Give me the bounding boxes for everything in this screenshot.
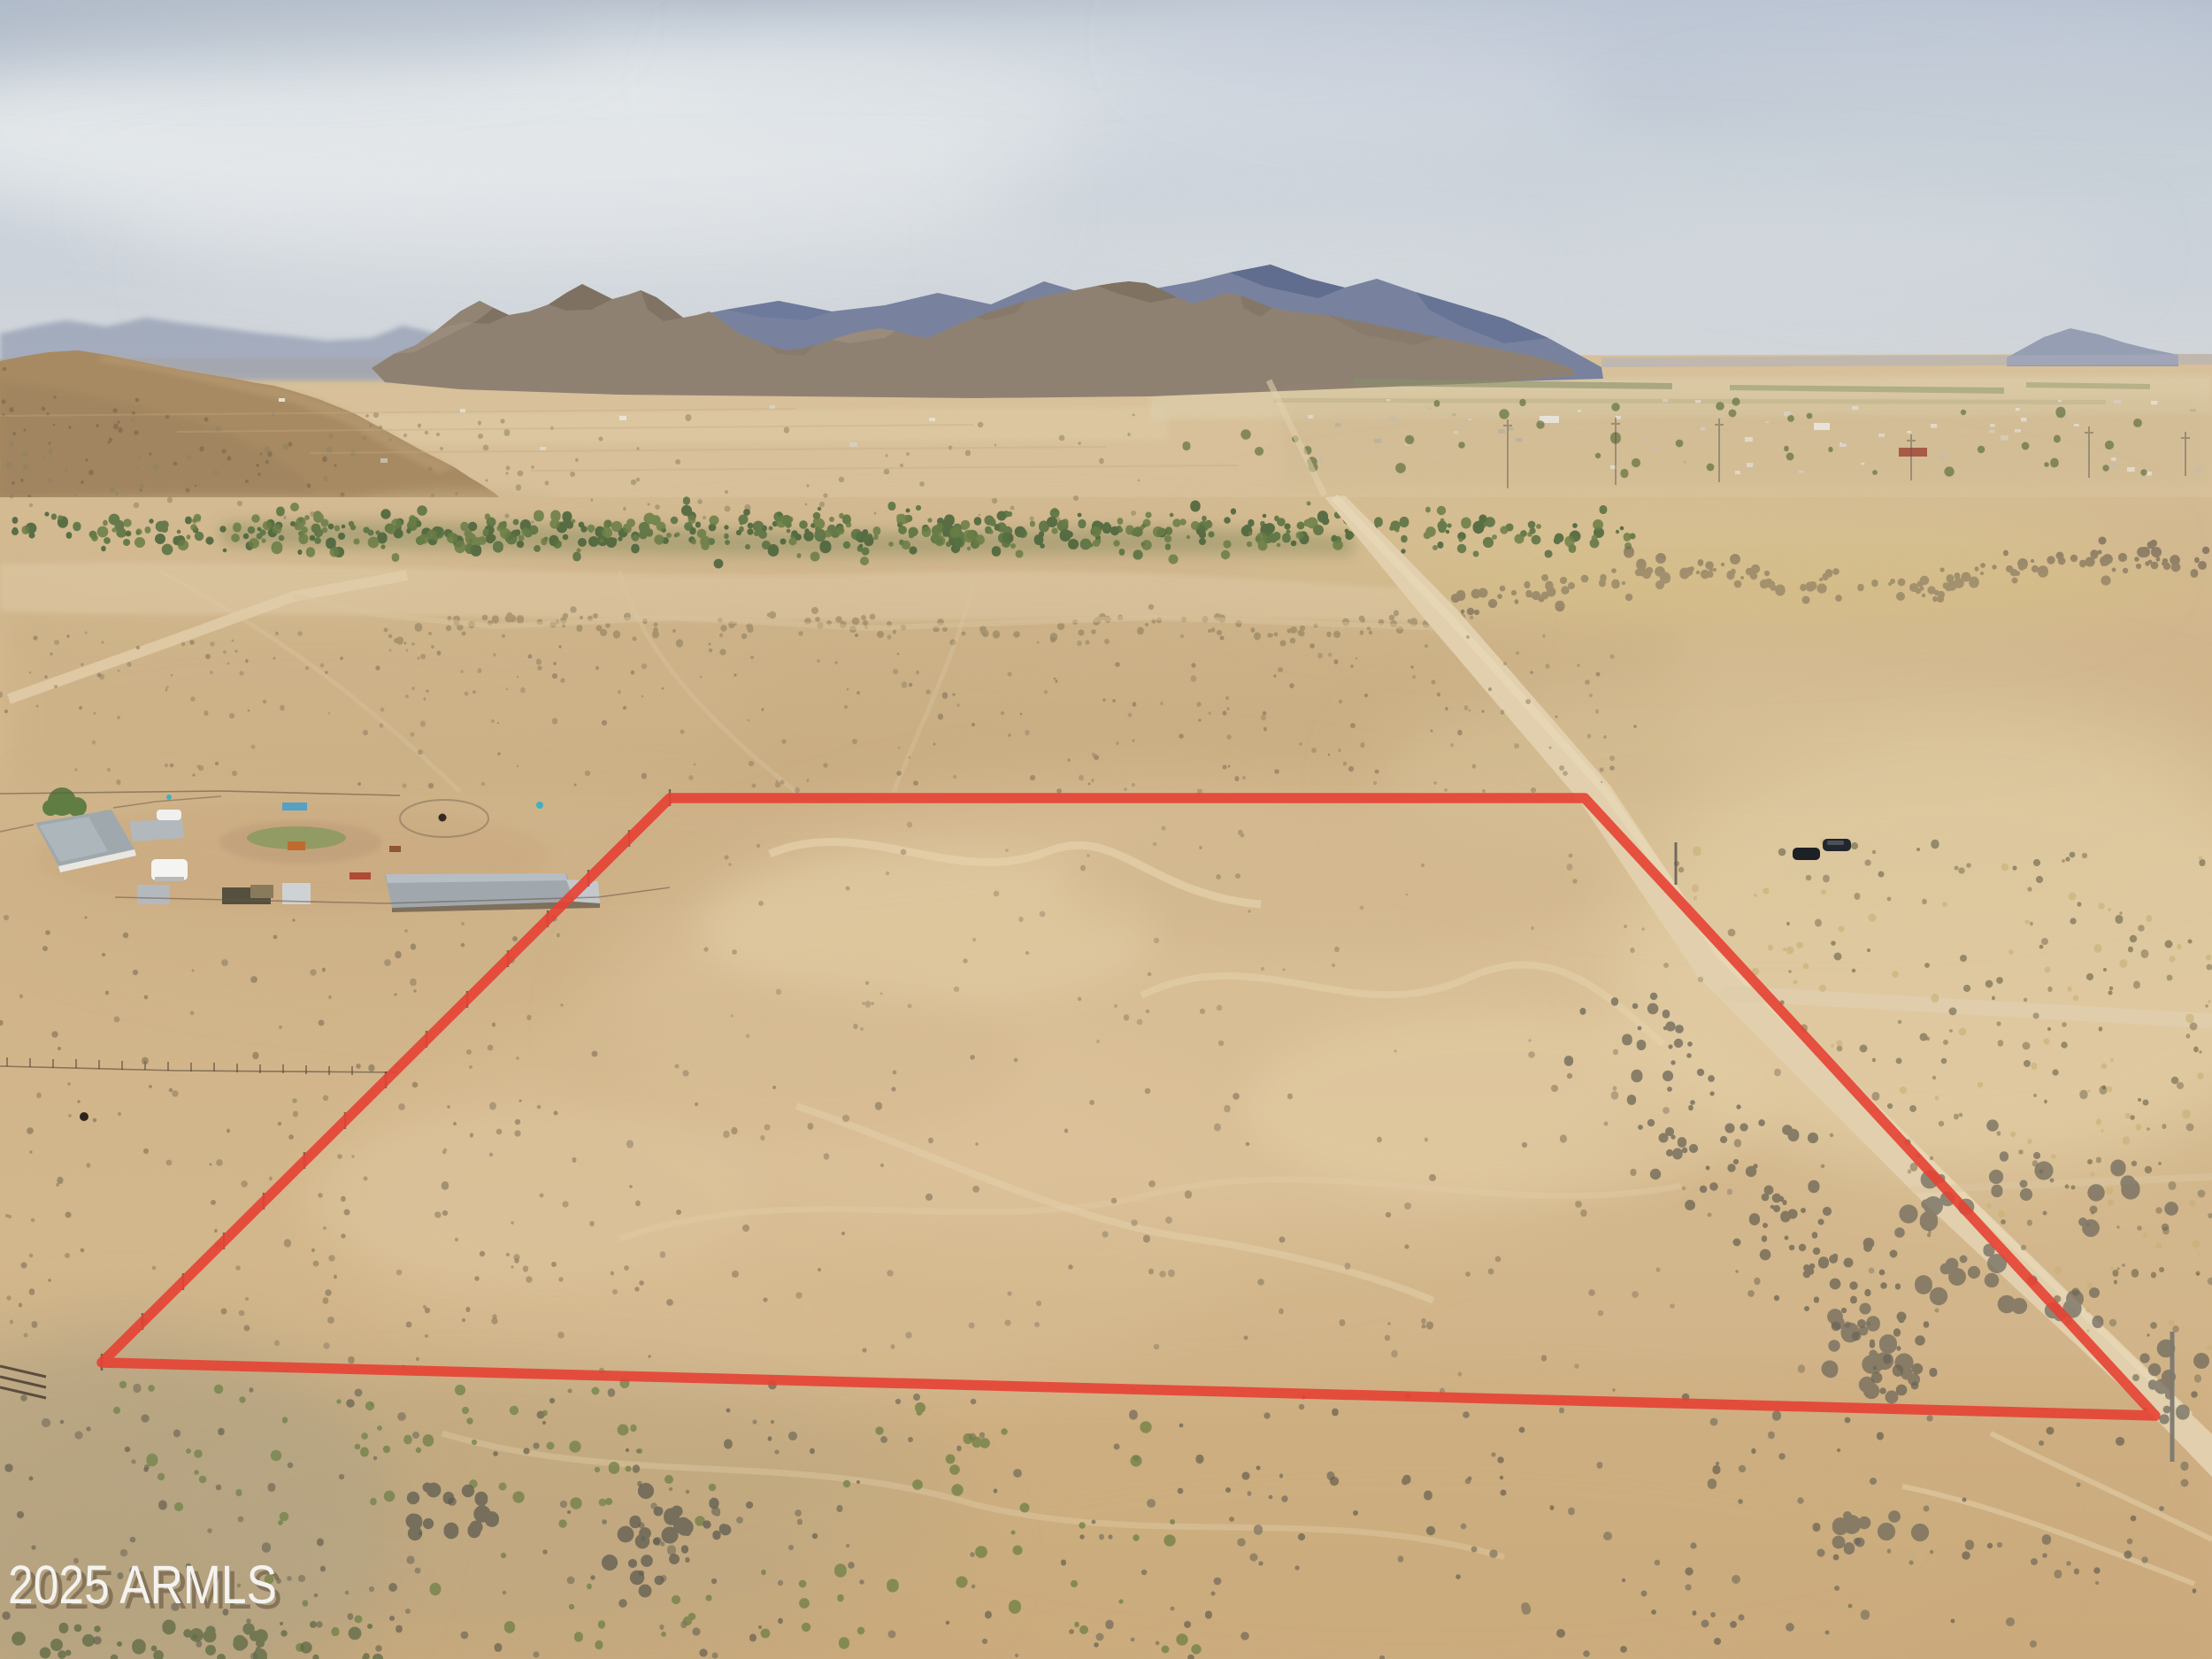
svg-text:2025 ARMLS: 2025 ARMLS bbox=[8, 1555, 277, 1615]
